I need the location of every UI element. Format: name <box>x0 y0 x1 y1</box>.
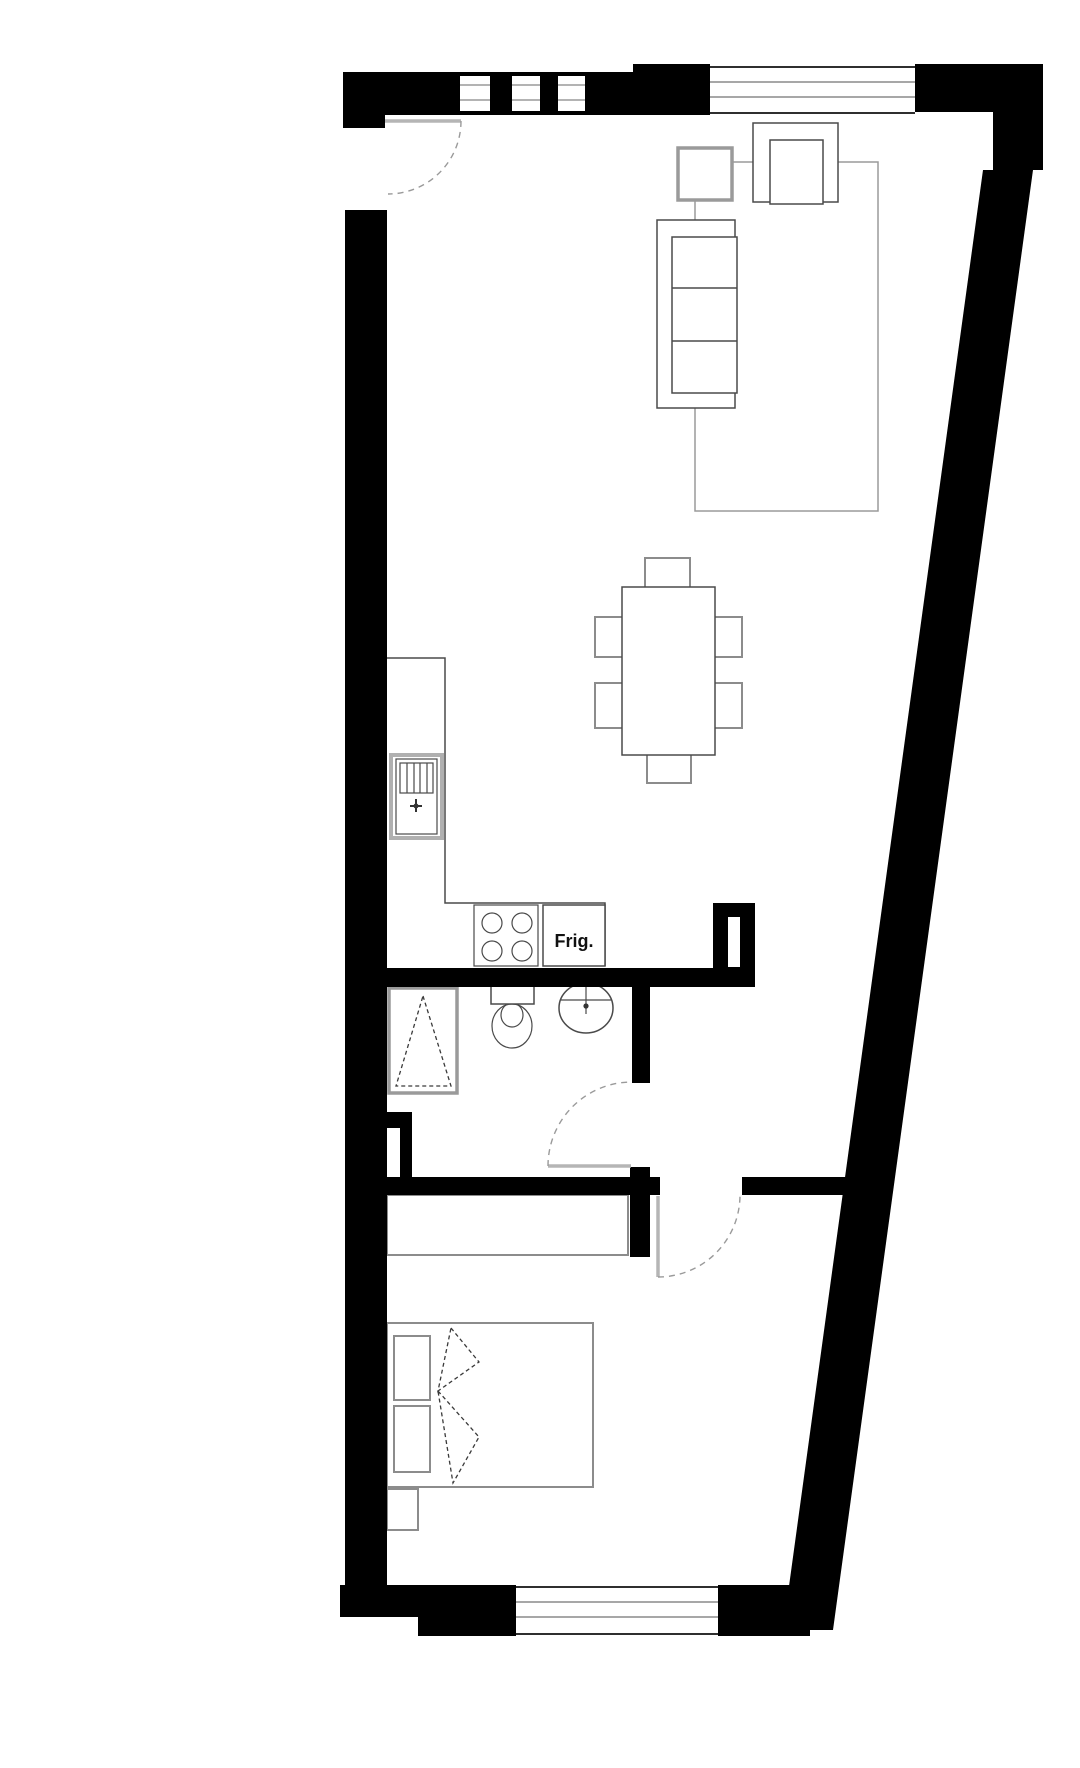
entry-door-swing-arc <box>388 121 461 194</box>
pillow <box>394 1336 430 1400</box>
kitchen-bathroom-wall <box>345 968 755 987</box>
dining-chair-top <box>645 558 690 590</box>
bedroom-door-swing-arc <box>658 1195 740 1277</box>
entry-door <box>385 121 461 194</box>
hall-bedroom-wall <box>387 1177 660 1195</box>
hall-bedroom-wall-right <box>742 1177 848 1195</box>
bathroom <box>389 983 613 1093</box>
refrigerator: Frig. <box>543 905 605 966</box>
left-wall <box>345 210 387 1587</box>
shower-tray <box>389 988 457 1093</box>
shower <box>389 988 457 1093</box>
sofa-cushions <box>672 237 737 393</box>
dining-chair-bottom <box>647 752 691 783</box>
bottom-right-wall <box>718 1585 810 1636</box>
floor-plan: Frig. <box>0 0 1080 1768</box>
fridge-label: Frig. <box>555 931 594 951</box>
top-right-corner-step <box>993 112 1043 170</box>
entry-door-jamb <box>343 115 385 128</box>
top-right-corner <box>915 64 1043 112</box>
kitchen: Frig. <box>387 658 605 966</box>
bedroom <box>387 1195 628 1530</box>
bottom-left-corner-step <box>418 1617 516 1636</box>
living-room <box>657 123 878 511</box>
bottom-left-corner <box>340 1585 516 1617</box>
bathroom-door <box>548 1082 632 1166</box>
bathroom-stub-wall <box>387 1112 412 1128</box>
window-pane <box>460 76 490 111</box>
nightstand <box>387 1489 418 1530</box>
toilet-bowl <box>492 1004 532 1048</box>
stove-burner <box>512 941 532 961</box>
dining-chair-right-2 <box>713 683 742 728</box>
pillow <box>394 1406 430 1472</box>
wash-basin <box>559 983 613 1033</box>
toilet-bowl-inner <box>501 1003 523 1027</box>
dining-chair-right-1 <box>713 617 742 657</box>
stove-burner <box>512 913 532 933</box>
bedroom-door <box>658 1195 740 1277</box>
dining-table <box>622 587 715 755</box>
duct-shaft-opening <box>728 917 740 967</box>
bathroom-side-wall <box>632 987 650 1083</box>
top-small-window <box>460 76 585 111</box>
window-pane <box>512 76 540 111</box>
side-table <box>678 148 732 200</box>
top-wall-pier <box>633 64 710 115</box>
wardrobe <box>387 1195 628 1255</box>
sink-cabinet <box>391 755 442 838</box>
dining-chair-left-1 <box>595 617 624 657</box>
kitchen-sink <box>391 755 442 838</box>
toilet <box>491 984 534 1048</box>
basin-drain-icon <box>583 1003 588 1008</box>
dining-area <box>595 558 742 783</box>
stove-burner <box>482 941 502 961</box>
bathroom-stub-wall-leg <box>400 1128 412 1177</box>
armchair-seat <box>770 140 823 204</box>
top-right-window <box>710 67 915 113</box>
window-pane <box>558 76 585 111</box>
sofa <box>657 220 737 408</box>
stove <box>474 905 538 966</box>
armchair <box>753 123 838 204</box>
dining-chair-left-2 <box>595 683 624 728</box>
slanted-right-wall <box>783 170 1033 1630</box>
stove-burner <box>482 913 502 933</box>
bottom-window <box>516 1587 718 1634</box>
bathroom-door-swing-arc <box>548 1082 632 1166</box>
